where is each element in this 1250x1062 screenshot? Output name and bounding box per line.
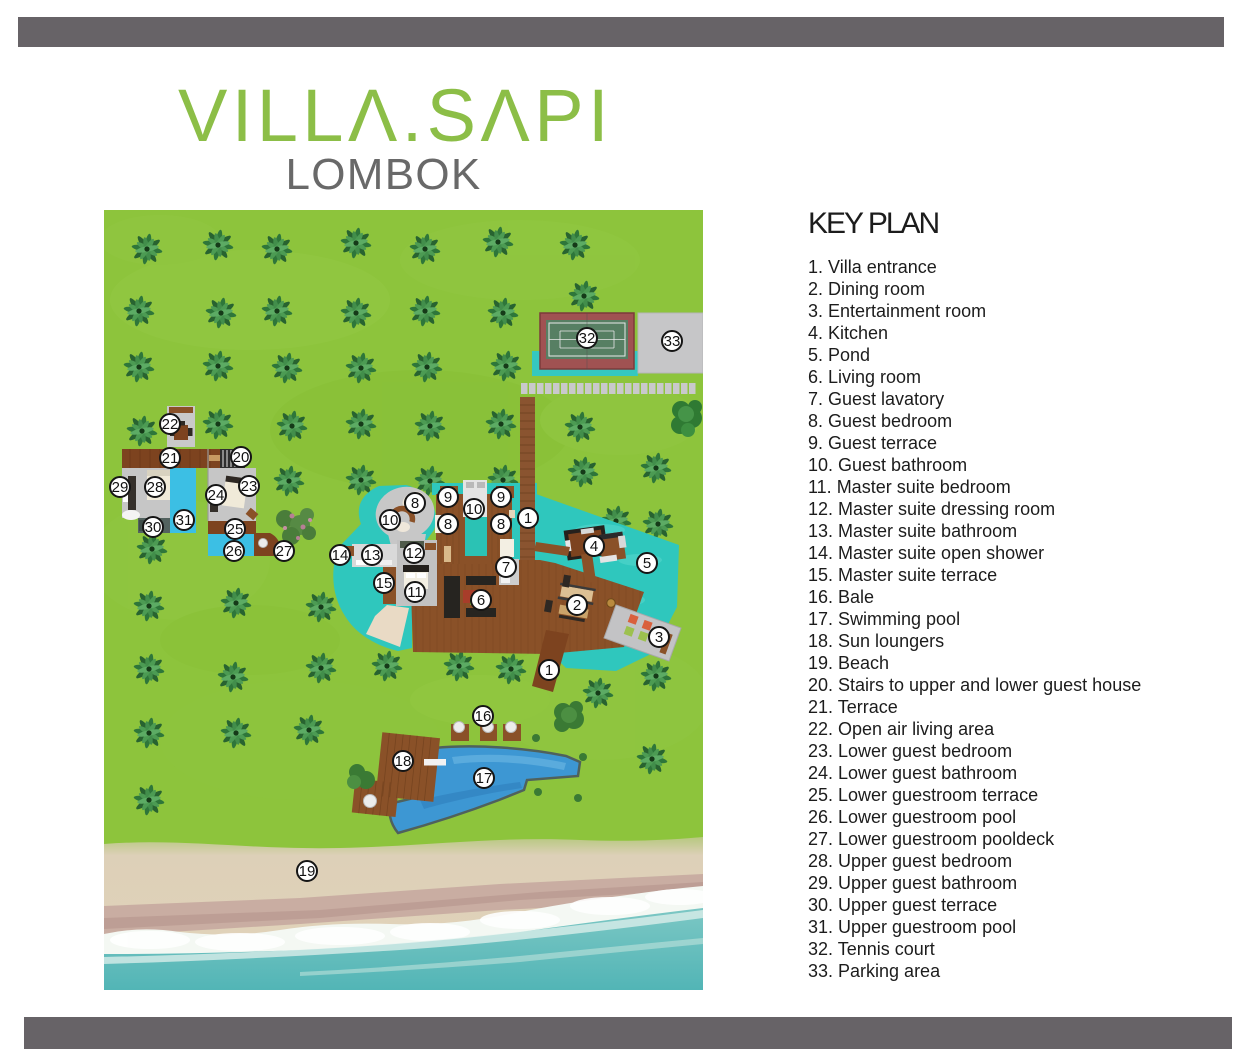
svg-text:8: 8 <box>411 495 419 512</box>
svg-text:27: 27 <box>276 543 293 560</box>
svg-text:14: 14 <box>332 547 349 564</box>
svg-text:11: 11 <box>407 584 423 601</box>
svg-text:10: 10 <box>382 512 399 529</box>
svg-text:2: 2 <box>573 597 581 614</box>
svg-text:17: 17 <box>476 770 493 787</box>
svg-text:15: 15 <box>376 575 393 592</box>
svg-text:24: 24 <box>208 487 225 504</box>
svg-text:23: 23 <box>241 478 258 495</box>
svg-text:8: 8 <box>497 516 505 533</box>
svg-text:21: 21 <box>162 450 179 467</box>
svg-text:31: 31 <box>176 512 193 529</box>
svg-text:19: 19 <box>299 863 316 880</box>
svg-text:9: 9 <box>444 489 452 506</box>
svg-text:33: 33 <box>664 333 681 350</box>
svg-text:10: 10 <box>466 501 483 518</box>
svg-text:22: 22 <box>162 416 179 433</box>
svg-text:20: 20 <box>233 449 250 466</box>
svg-text:18: 18 <box>395 753 412 770</box>
svg-text:8: 8 <box>444 516 452 533</box>
svg-text:6: 6 <box>477 592 485 609</box>
svg-text:5: 5 <box>643 555 651 572</box>
svg-text:9: 9 <box>497 489 505 506</box>
svg-text:3: 3 <box>655 629 663 646</box>
svg-text:7: 7 <box>502 559 510 576</box>
svg-text:4: 4 <box>590 538 598 555</box>
svg-text:13: 13 <box>364 547 381 564</box>
svg-text:1: 1 <box>524 510 532 527</box>
svg-text:29: 29 <box>112 479 129 496</box>
svg-text:32: 32 <box>579 330 596 347</box>
svg-text:26: 26 <box>226 543 243 560</box>
svg-text:30: 30 <box>145 519 162 536</box>
svg-text:12: 12 <box>406 545 423 562</box>
svg-text:1: 1 <box>545 662 553 679</box>
svg-text:25: 25 <box>227 521 244 538</box>
svg-text:28: 28 <box>147 479 164 496</box>
svg-text:16: 16 <box>475 708 492 725</box>
